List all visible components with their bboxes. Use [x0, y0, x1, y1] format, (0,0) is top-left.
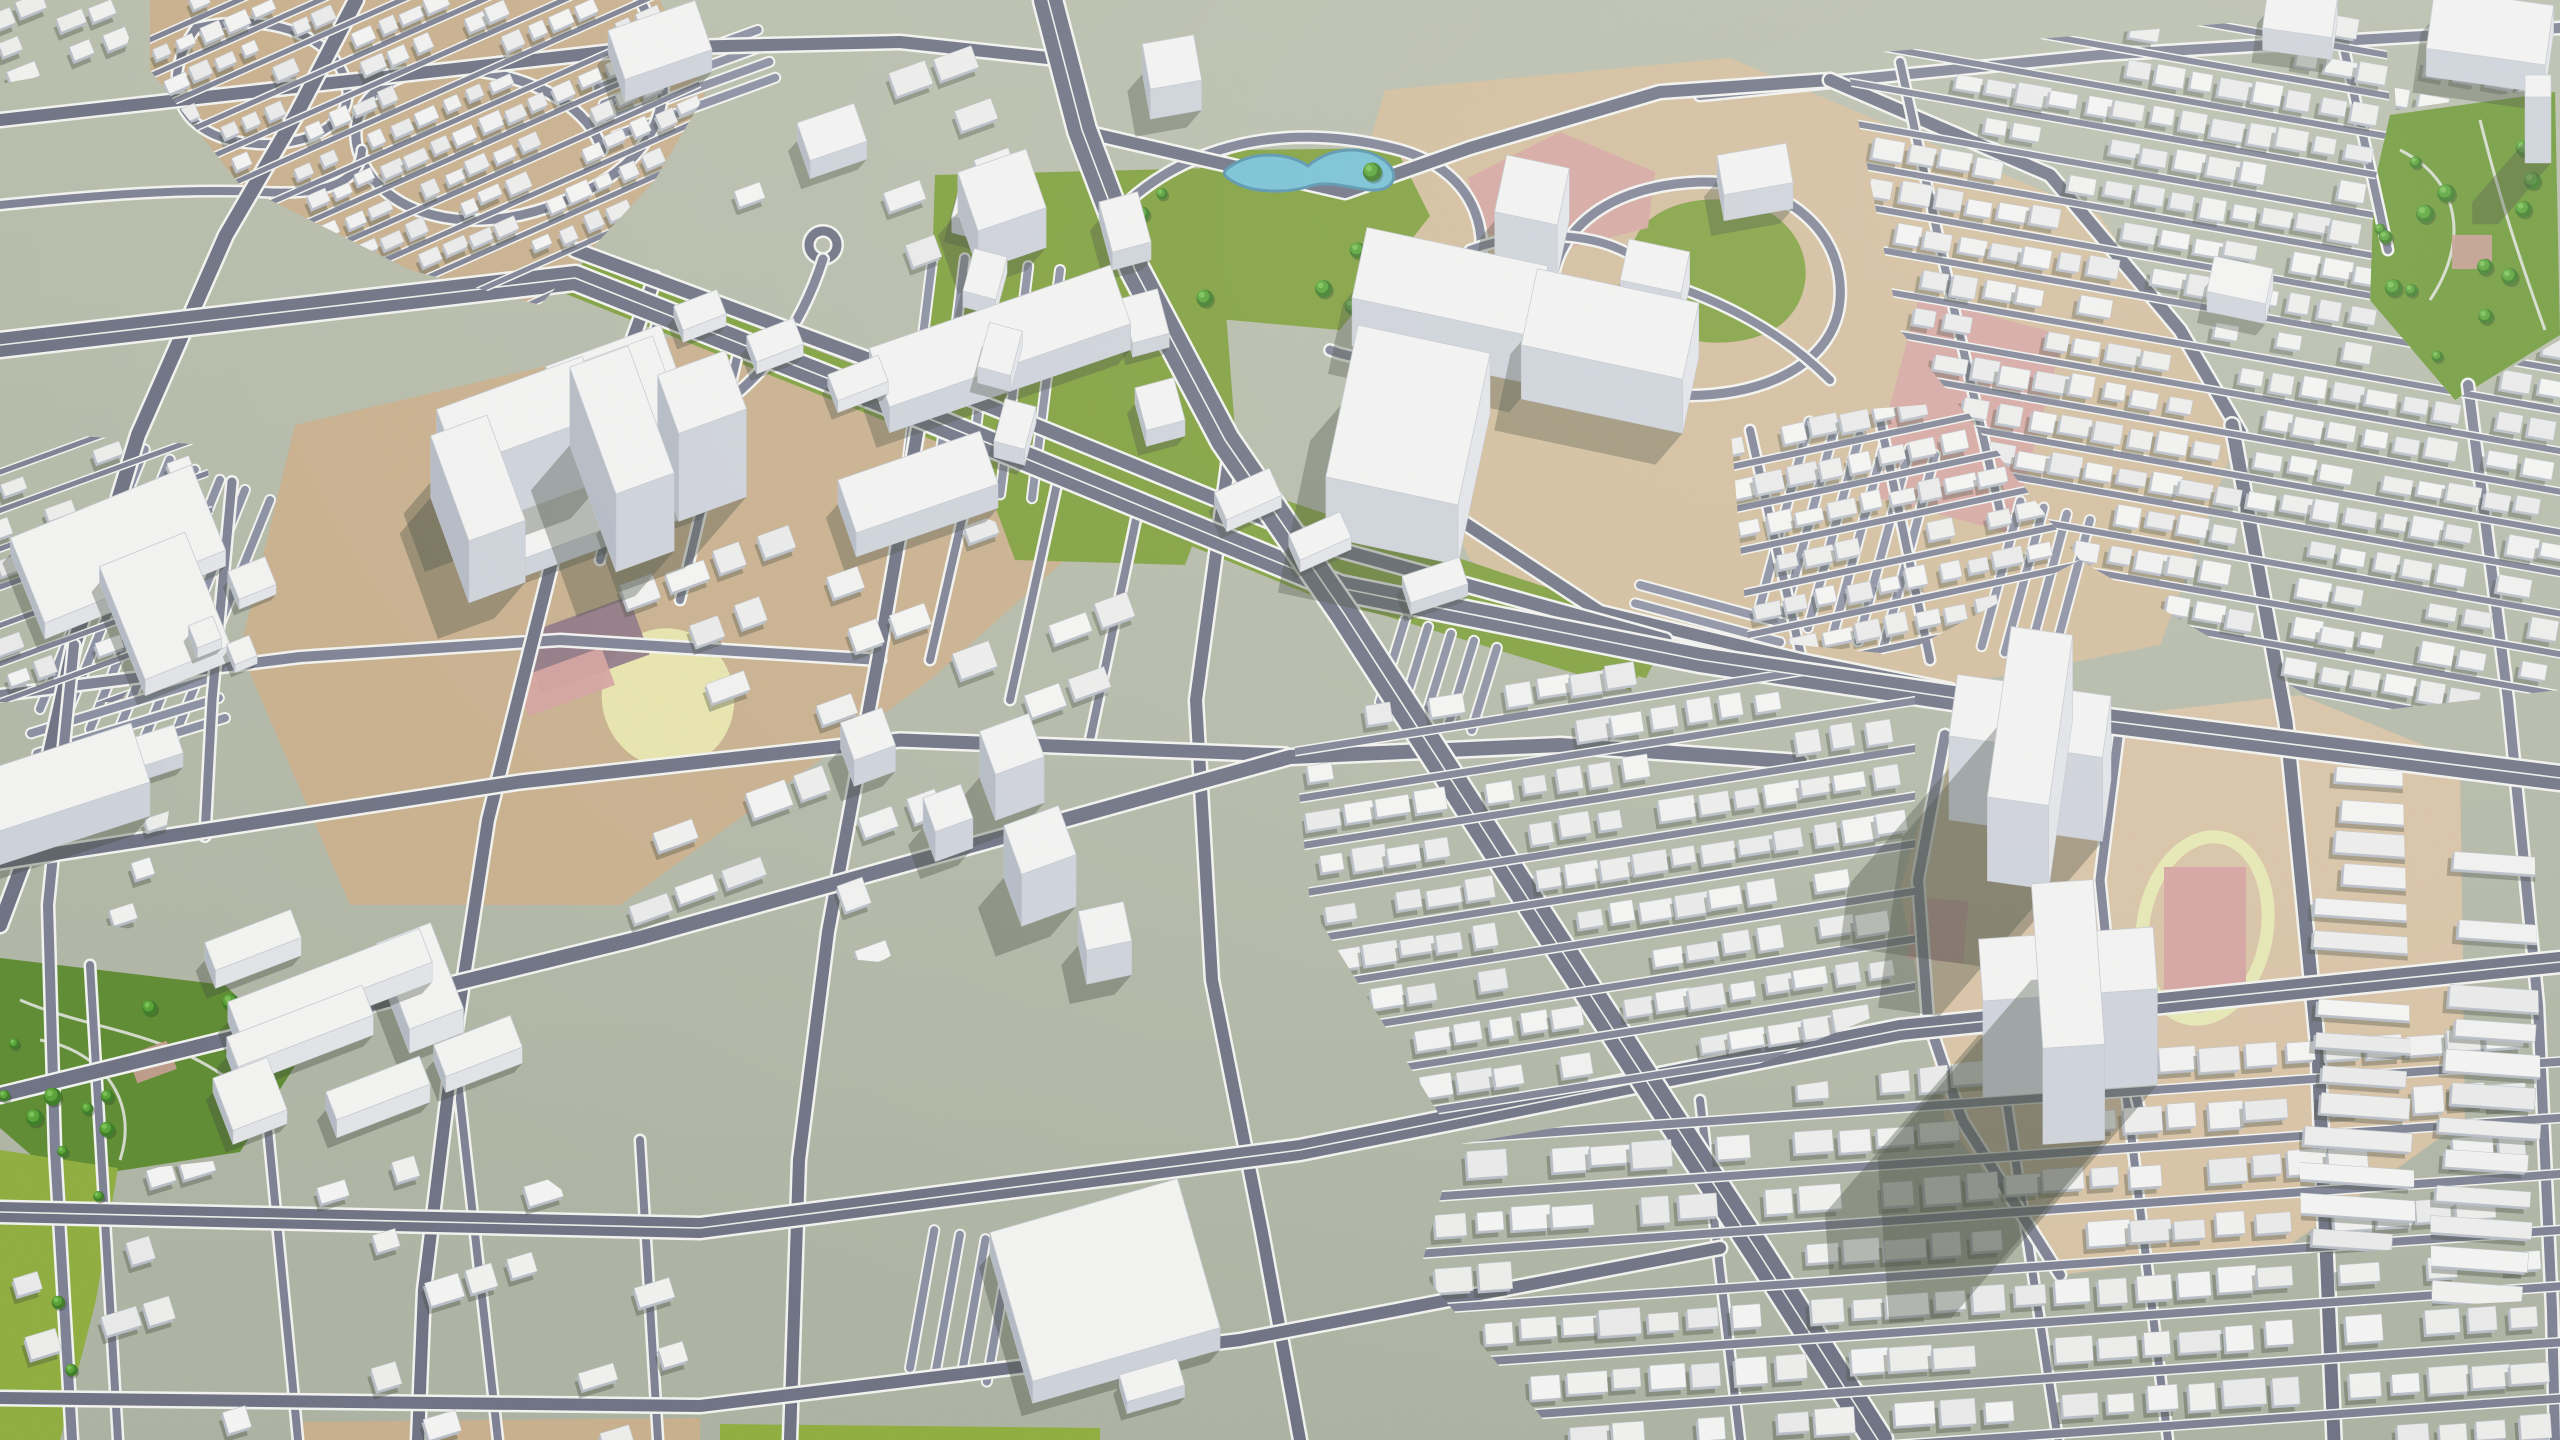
city-3d-render [0, 0, 2560, 1440]
layer-atmosphere [0, 0, 2560, 1440]
city-3d-viewport[interactable] [0, 0, 2560, 1440]
film-grain [0, 0, 2560, 1440]
